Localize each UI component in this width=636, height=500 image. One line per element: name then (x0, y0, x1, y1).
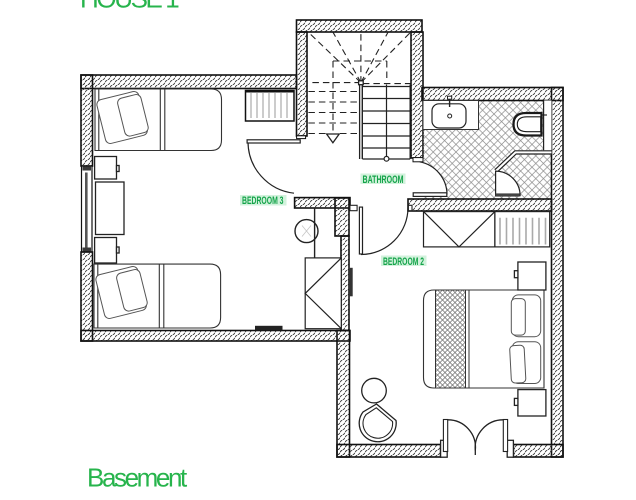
svg-text:HOUSE 1: HOUSE 1 (80, 0, 179, 14)
svg-text:BEDROOM 3: BEDROOM 3 (242, 195, 284, 207)
svg-text:BEDROOM 2: BEDROOM 2 (383, 256, 424, 268)
svg-text:BATHROOM: BATHROOM (363, 174, 404, 186)
svg-text:Basement: Basement (87, 463, 188, 493)
